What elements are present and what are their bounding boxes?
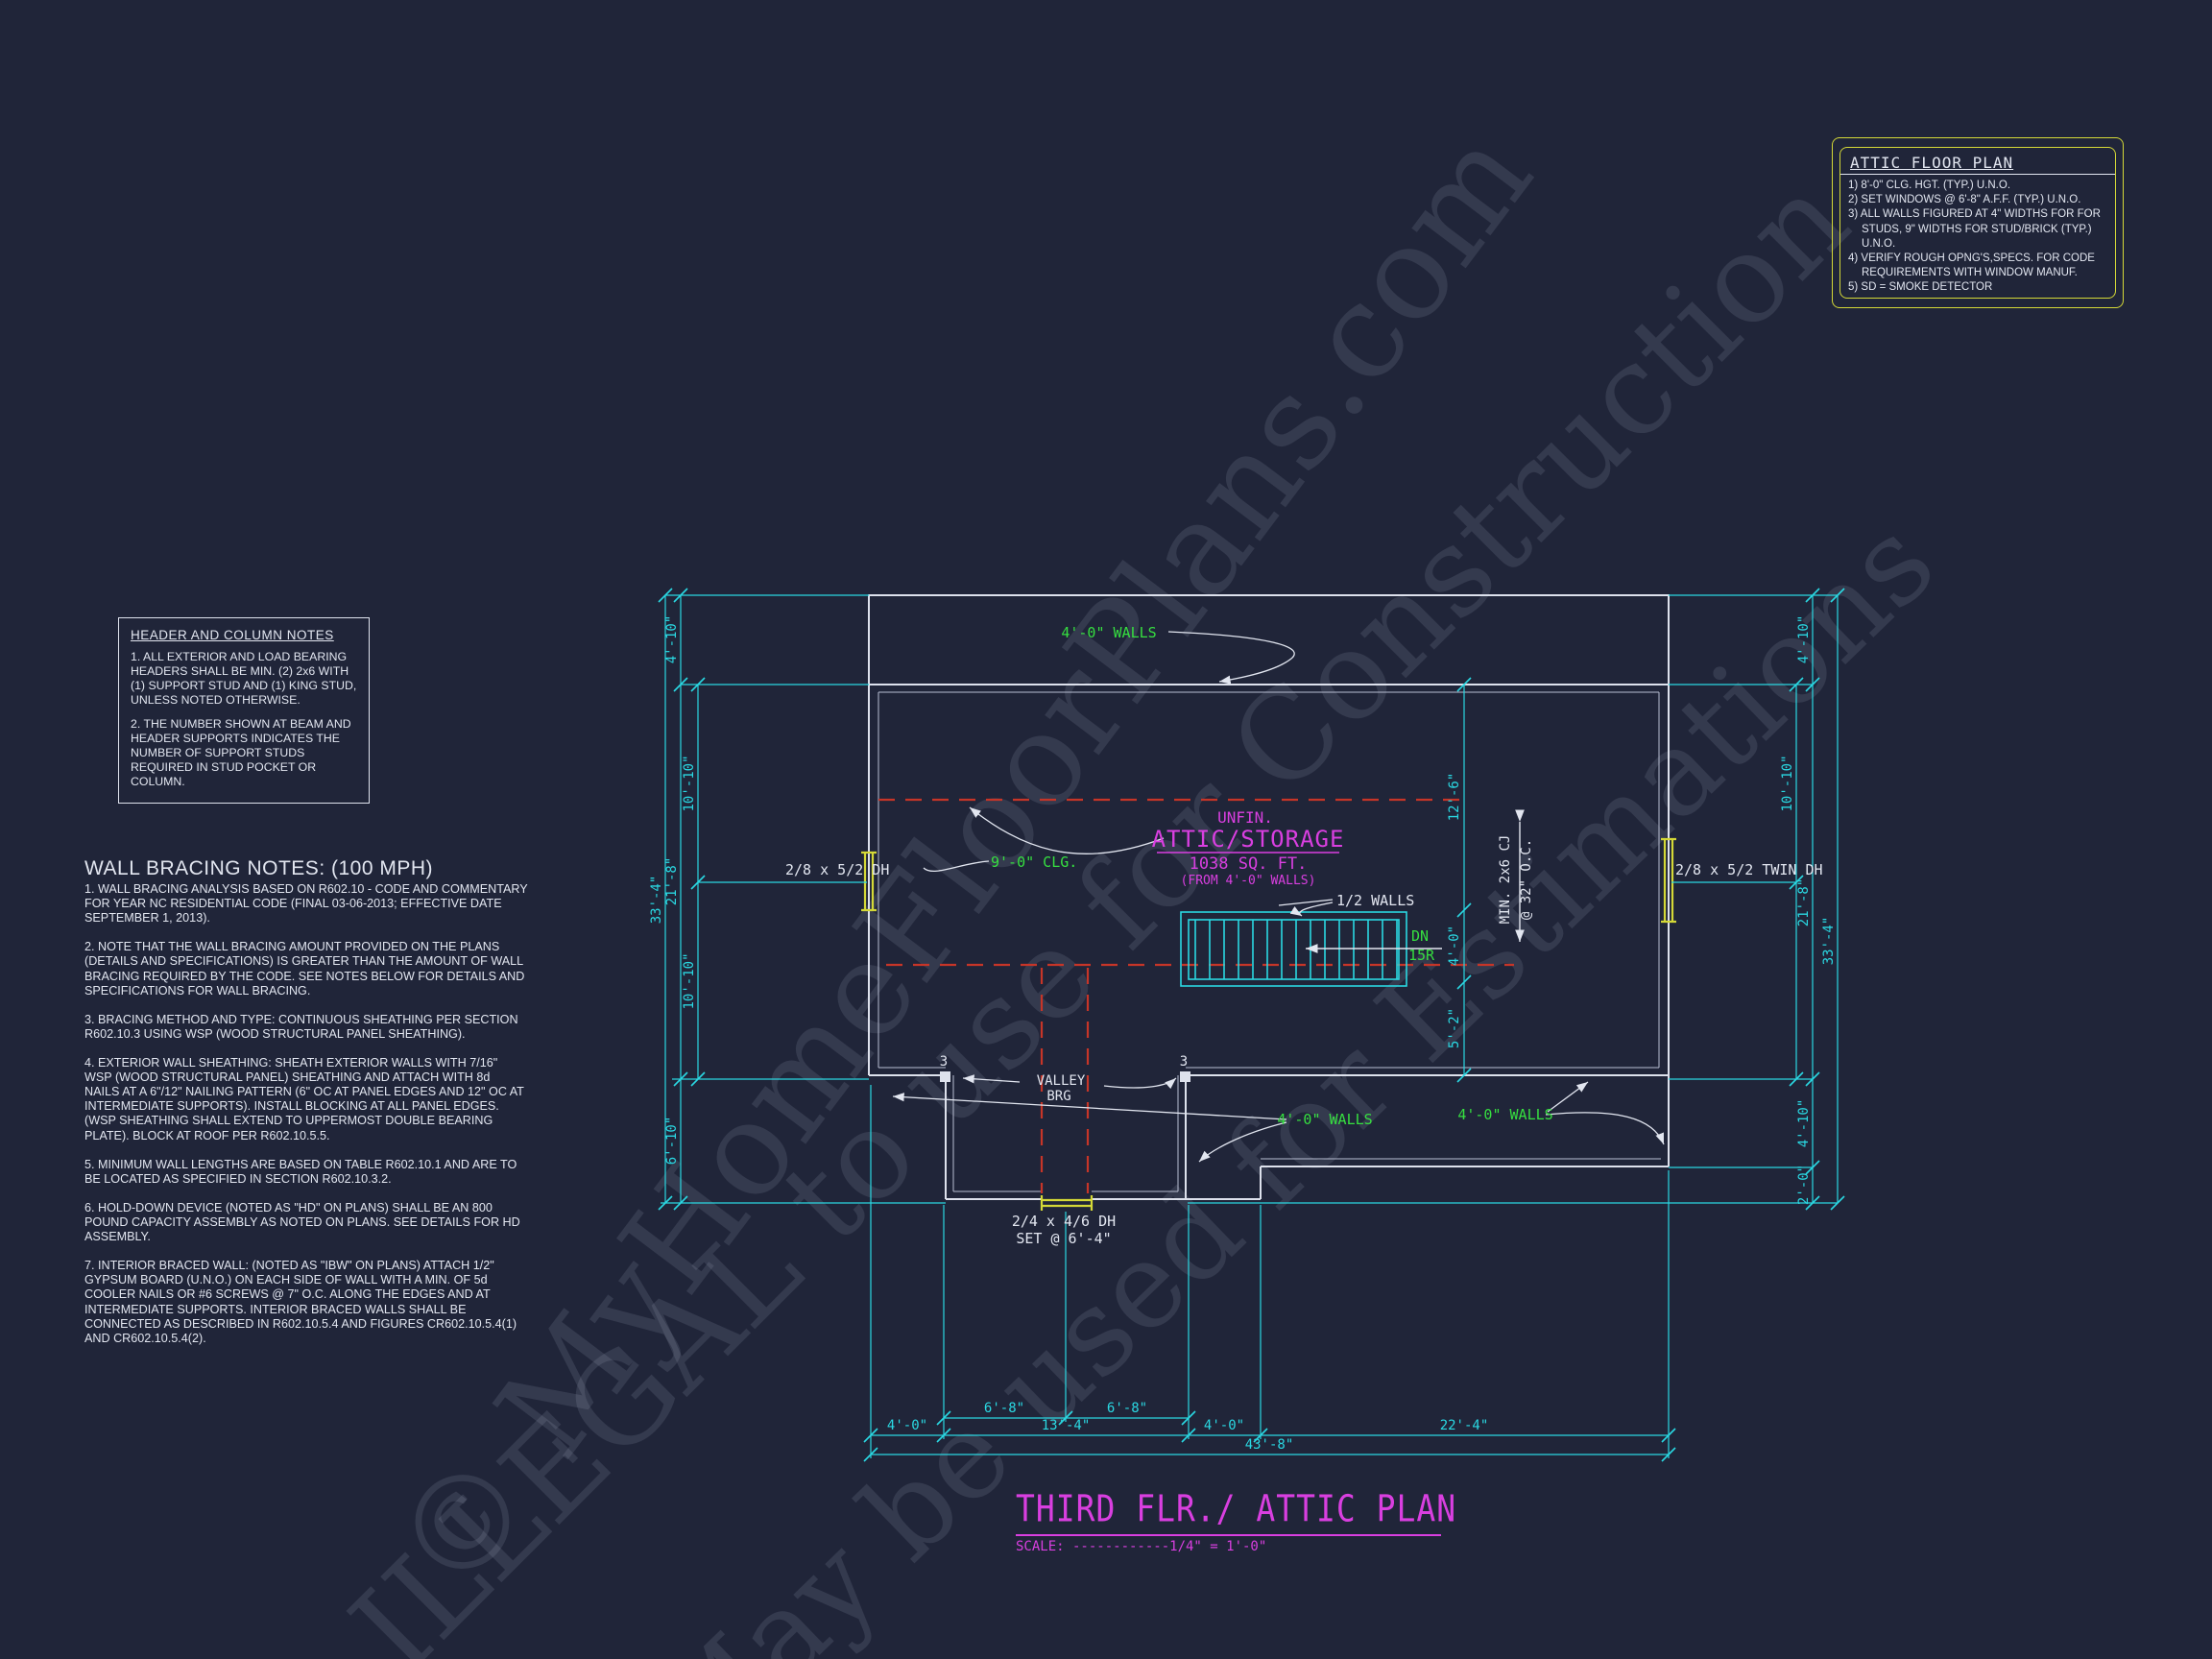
bracing-note-4: 4. EXTERIOR WALL SHEATHING: SHEATH EXTER… bbox=[84, 1056, 528, 1143]
bracing-note-7: 7. INTERIOR BRACED WALL: (NOTED AS "IBW"… bbox=[84, 1259, 528, 1346]
half-walls-label: 1/2 WALLS bbox=[1336, 892, 1414, 909]
bracing-note-1: 1. WALL BRACING ANALYSIS BASED ON R602.1… bbox=[84, 882, 528, 926]
svg-text:21'-8": 21'-8" bbox=[1796, 878, 1812, 927]
dimension-lines bbox=[661, 595, 1838, 1458]
attic-note-item: 1) 8'-0" CLG. HGT. (TYP.) U.N.O. bbox=[1848, 179, 2107, 193]
dims-right: 4'-10" 10'-10" 21'-8" 33'-4" 4'-10" 2'-0… bbox=[1780, 615, 1837, 1205]
svg-text:10'-10": 10'-10" bbox=[1780, 755, 1795, 811]
header-column-notes-box: HEADER AND COLUMN NOTES 1. ALL EXTERIOR … bbox=[118, 617, 370, 804]
svg-text:2'-0": 2'-0" bbox=[1796, 1165, 1812, 1205]
svg-text:10'-10": 10'-10" bbox=[682, 755, 697, 811]
header-notes-title: HEADER AND COLUMN NOTES bbox=[131, 628, 357, 642]
svg-text:43'-8": 43'-8" bbox=[1245, 1437, 1294, 1453]
attic-notes-inner-border: ATTIC FLOOR PLAN 1) 8'-0" CLG. HGT. (TYP… bbox=[1839, 147, 2116, 299]
attic-floor-plan-notes-box: ATTIC FLOOR PLAN 1) 8'-0" CLG. HGT. (TYP… bbox=[1832, 137, 2124, 308]
svg-text:MIN. 2x6 CJ: MIN. 2x6 CJ bbox=[1498, 835, 1513, 925]
svg-text:10'-10": 10'-10" bbox=[682, 952, 697, 1009]
walls-top-label: 4'-0" WALLS bbox=[1061, 624, 1156, 641]
svg-text:4'-0": 4'-0" bbox=[1447, 926, 1462, 966]
sheet-scale: SCALE: ------------1/4" = 1'-0" bbox=[1016, 1539, 1456, 1554]
bracing-note-5: 5. MINIMUM WALL LENGTHS ARE BASED ON TAB… bbox=[84, 1158, 528, 1187]
attic-note-item: 4) VERIFY ROUGH OPNG'S,SPECS. FOR CODE R… bbox=[1848, 252, 2107, 280]
svg-text:6'-10": 6'-10" bbox=[664, 1117, 680, 1166]
svg-text:12'-6": 12'-6" bbox=[1447, 773, 1462, 822]
stair-riser-label: 15R bbox=[1408, 947, 1435, 964]
svg-text:21'-8": 21'-8" bbox=[664, 857, 680, 906]
bracing-note-3: 3. BRACING METHOD AND TYPE: CONTINUOUS S… bbox=[84, 1013, 528, 1042]
post-count-left: 3 bbox=[940, 1054, 948, 1070]
attic-note-item: 2) SET WINDOWS @ 6'-8" A.F.F. (TYP.) U.N… bbox=[1848, 193, 2107, 207]
leader-lines bbox=[893, 632, 1664, 1162]
door-bottom bbox=[1042, 1195, 1092, 1211]
svg-text:6'-8": 6'-8" bbox=[984, 1401, 1024, 1416]
svg-text:13'-4": 13'-4" bbox=[1042, 1418, 1091, 1433]
sheet-title: THIRD FLR./ ATTIC PLAN bbox=[1016, 1487, 1456, 1530]
dims-interior: 12'-6" 4'-0" 5'-2" bbox=[1447, 773, 1462, 1048]
wall-bracing-notes: WALL BRACING NOTES: (100 MPH) 1. WALL BR… bbox=[84, 857, 528, 1360]
valley-brg-label-1: VALLEY bbox=[1037, 1073, 1086, 1089]
window-left-label: 2/8 x 5/2 DH bbox=[785, 861, 889, 878]
dims-left: 4'-10" 10'-10" 10'-10" 21'-8" 33'-4" 6'-… bbox=[649, 615, 697, 1166]
dimension-ticks bbox=[659, 589, 1844, 1461]
svg-text:4'-10": 4'-10" bbox=[1796, 1099, 1812, 1148]
bracing-note-2: 2. NOTE THAT THE WALL BRACING AMOUNT PRO… bbox=[84, 940, 528, 998]
svg-text:4'-0": 4'-0" bbox=[887, 1418, 927, 1433]
walls-bottom-left-label: 4'-0" WALLS bbox=[1277, 1111, 1372, 1128]
room-area-basis-label: (FROM 4'-0" WALLS) bbox=[1181, 874, 1316, 888]
ceiling-height-label: 9'-0" CLG. bbox=[991, 854, 1077, 871]
svg-text:22'-4": 22'-4" bbox=[1440, 1418, 1489, 1433]
wall-bracing-title: WALL BRACING NOTES: (100 MPH) bbox=[84, 857, 528, 880]
sheet-title-block: THIRD FLR./ ATTIC PLAN SCALE: ----------… bbox=[1016, 1487, 1456, 1554]
svg-text:6'-8": 6'-8" bbox=[1107, 1401, 1147, 1416]
header-note-1: 1. ALL EXTERIOR AND LOAD BEARING HEADERS… bbox=[131, 650, 357, 708]
svg-text:5'-2": 5'-2" bbox=[1447, 1008, 1462, 1048]
stair-dn-label: DN bbox=[1411, 927, 1429, 945]
attic-notes-title: ATTIC FLOOR PLAN bbox=[1840, 148, 2115, 174]
attic-plan-sheet: © MyHomeFloorPlans.com ILLEGAL to use fo… bbox=[0, 0, 2212, 1659]
post-count-right: 3 bbox=[1180, 1054, 1188, 1070]
svg-text:33'-4": 33'-4" bbox=[649, 876, 664, 925]
walls-bottom-right-label: 4'-0" WALLS bbox=[1457, 1106, 1552, 1123]
room-unfinished-label: UNFIN. bbox=[1217, 808, 1273, 827]
dims-bottom: 6'-8" 6'-8" 4'-0" 13'-4" 4'-0" 22'-4" 43… bbox=[887, 1401, 1488, 1453]
svg-text:33'-4": 33'-4" bbox=[1821, 917, 1837, 966]
attic-note-item: 3) ALL WALLS FIGURED AT 4" WIDTHS FOR FO… bbox=[1848, 207, 2107, 252]
svg-text:4'-0": 4'-0" bbox=[1204, 1418, 1244, 1433]
svg-text:4'-10": 4'-10" bbox=[664, 615, 680, 664]
window-right-label: 2/8 x 5/2 TWIN DH bbox=[1675, 861, 1823, 878]
header-note-2: 2. THE NUMBER SHOWN AT BEAM AND HEADER S… bbox=[131, 717, 357, 789]
svg-text:@ 32" O.C.: @ 32" O.C. bbox=[1519, 839, 1534, 920]
sheet-title-underline bbox=[1016, 1534, 1441, 1536]
door-bottom-label-1: 2/4 x 4/6 DH bbox=[1012, 1213, 1116, 1230]
attic-note-item: 5) SD = SMOKE DETECTOR bbox=[1848, 280, 2107, 295]
room-area-label: 1038 SQ. FT. bbox=[1190, 854, 1308, 874]
stair-treads bbox=[1195, 920, 1397, 979]
room-name-label: ATTIC/STORAGE bbox=[1152, 826, 1345, 853]
bracing-note-6: 6. HOLD-DOWN DEVICE (NOTED AS "HD" ON PL… bbox=[84, 1201, 528, 1244]
svg-text:4'-10": 4'-10" bbox=[1796, 615, 1812, 664]
door-bottom-label-2: SET @ 6'-4" bbox=[1016, 1230, 1111, 1247]
joist-note: MIN. 2x6 CJ @ 32" O.C. bbox=[1498, 835, 1534, 925]
valley-brg-label-2: BRG bbox=[1046, 1089, 1070, 1104]
